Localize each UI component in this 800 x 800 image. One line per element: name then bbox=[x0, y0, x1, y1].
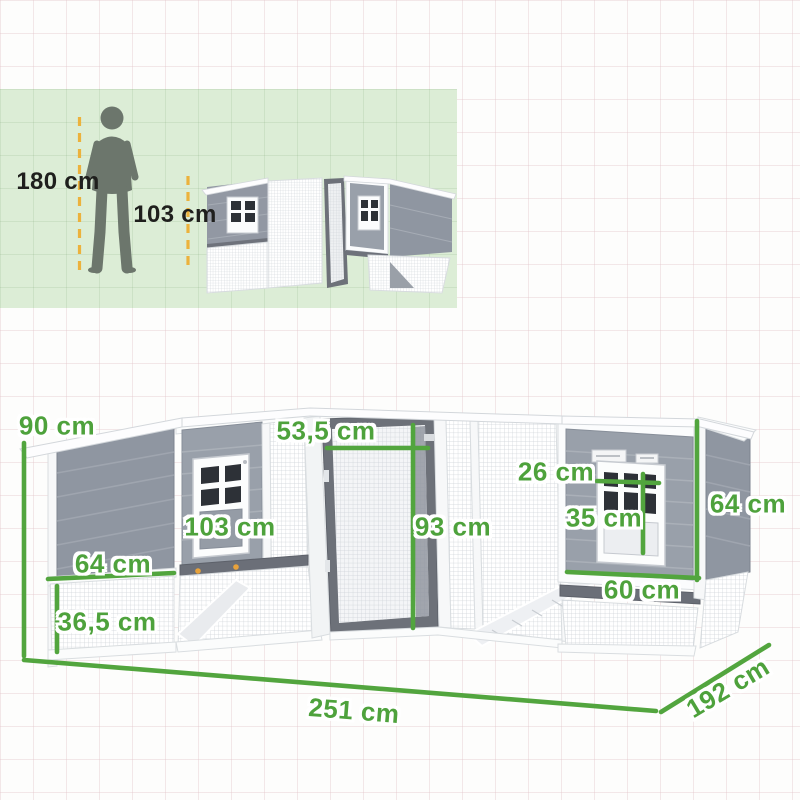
door-latch bbox=[424, 434, 434, 441]
dim-overall-height-label: 90 cm bbox=[19, 411, 95, 442]
scale-comparison-panel: 180 cm 103 cm bbox=[0, 89, 457, 308]
dim-coop-height-label: 103 cm bbox=[184, 512, 275, 543]
coop-height-label: 103 cm bbox=[133, 201, 216, 229]
line-window-width bbox=[597, 481, 659, 483]
right-house bbox=[558, 419, 706, 656]
dim-run-height-label: 36,5 cm bbox=[58, 607, 157, 638]
dim-door-width-label: 53,5 cm bbox=[277, 416, 376, 447]
dim-right-house-width-label: 60 cm bbox=[604, 575, 680, 606]
dim-left-panel-width-label: 64 cm bbox=[75, 549, 151, 580]
coop-thumbnail bbox=[202, 176, 456, 293]
dim-right-side-height-label: 64 cm bbox=[710, 489, 786, 520]
right-wing bbox=[698, 417, 756, 648]
scale-panel-art bbox=[0, 89, 457, 308]
person-height-label: 180 cm bbox=[16, 168, 99, 196]
dim-door-height-label: 93 cm bbox=[415, 512, 491, 543]
dim-window-width-label: 26 cm bbox=[518, 457, 594, 488]
product-dimension-image: 180 cm 103 cm bbox=[0, 0, 800, 800]
dim-window-height-label: 35 cm bbox=[566, 503, 642, 534]
